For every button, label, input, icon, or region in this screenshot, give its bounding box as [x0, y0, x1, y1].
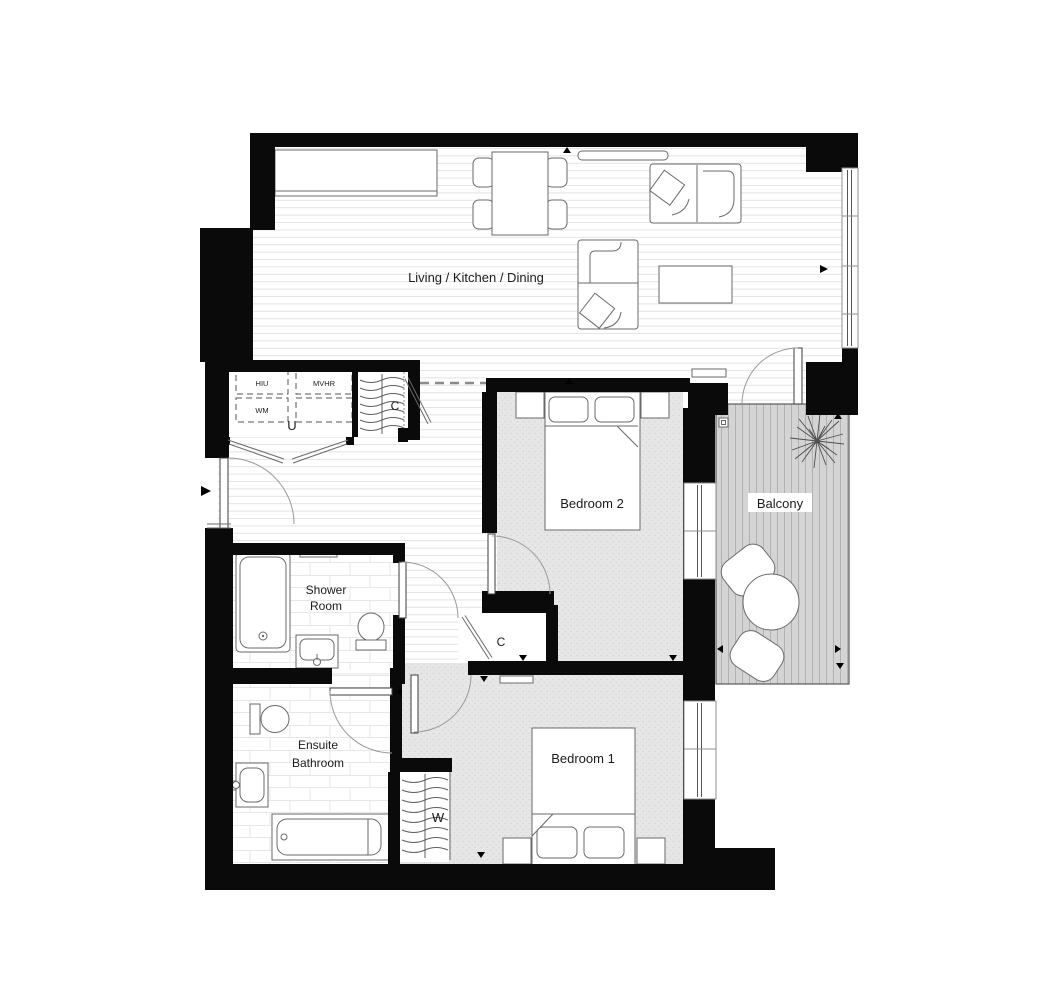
- toilet-ensuite: [250, 704, 289, 734]
- kitchen-counter: [275, 150, 437, 196]
- floor-plan-page: Living / Kitchen / Dining Bedroom 2 Bedr…: [0, 0, 1052, 982]
- label-bedroom-1: Bedroom 1: [551, 751, 615, 766]
- window-bedroom-1: [684, 701, 716, 799]
- label-living-kitchen-dining: Living / Kitchen / Dining: [408, 270, 544, 285]
- label-wm: WM: [255, 406, 268, 415]
- label-utility: U: [287, 418, 296, 433]
- label-hall-cupboard: C: [497, 635, 506, 649]
- label-shower-room-line1: Shower: [306, 583, 347, 597]
- window-bedroom-2: [684, 483, 716, 579]
- shower-tray: [236, 553, 290, 652]
- label-utility-cupboard: C: [391, 399, 400, 413]
- coffee-table: [659, 266, 732, 303]
- toilet-shower-room: [356, 613, 386, 650]
- bathtub: [272, 814, 392, 860]
- radiator-bedroom-1-wall: [500, 676, 533, 683]
- window-living-room: [842, 168, 858, 348]
- floor-plan: Living / Kitchen / Dining Bedroom 2 Bedr…: [0, 0, 1052, 982]
- label-balcony: Balcony: [757, 496, 804, 511]
- label-mvhr: MVHR: [313, 379, 336, 388]
- label-hiu: HIU: [256, 379, 269, 388]
- label-ensuite-line2: Bathroom: [292, 756, 344, 770]
- shelf-strip: [578, 151, 668, 160]
- sofa-left: [578, 240, 638, 329]
- label-ensuite-line1: Ensuite: [298, 738, 338, 752]
- radiator-living: [692, 369, 726, 377]
- balcony-drain: [719, 418, 728, 427]
- label-wardrobe: W: [432, 810, 445, 825]
- label-bedroom-2: Bedroom 2: [560, 496, 624, 511]
- sink-shower-room: [296, 635, 338, 668]
- sofa-top: [650, 164, 741, 223]
- label-shower-room-line2: Room: [310, 599, 342, 613]
